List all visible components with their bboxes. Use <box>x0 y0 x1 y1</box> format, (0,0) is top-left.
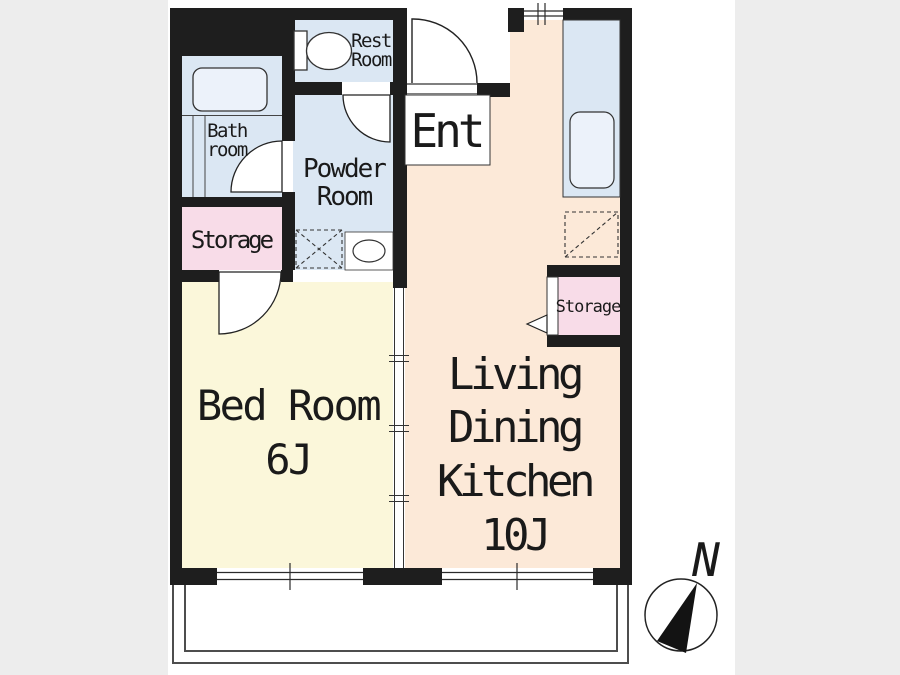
ldk-label-line3: Kitchen <box>437 456 592 507</box>
ldk-label-line2: Dining <box>448 402 581 453</box>
ldk-label-line1: Living <box>448 349 581 400</box>
powder-room-label-line1: Powder <box>303 154 386 184</box>
bed-room-size-label: 6J <box>265 435 311 484</box>
powder-room-label-line2: Room <box>317 182 373 212</box>
entrance-threshold <box>407 83 477 95</box>
wall-segment <box>547 335 632 347</box>
wall-segment <box>620 8 632 585</box>
ldk-size-label: 10J <box>481 510 547 561</box>
toilet-tank-icon <box>294 31 307 70</box>
wall-segment <box>182 197 282 207</box>
wall-segment <box>363 568 442 585</box>
wall-segment <box>547 265 632 277</box>
bathtub-icon <box>193 68 267 111</box>
wash-basin-icon <box>353 240 385 262</box>
toilet-bowl-icon <box>307 33 352 70</box>
wall-segment <box>293 82 342 95</box>
storage-right-label: Storage <box>556 297 621 317</box>
wall-segment <box>508 8 524 32</box>
storage-left-label: Storage <box>191 226 274 254</box>
wall-segment <box>282 192 295 270</box>
wall-segment <box>563 8 632 20</box>
top-window <box>524 8 563 20</box>
entrance-label: Ent <box>410 104 481 158</box>
wall-segment <box>282 8 295 141</box>
wall-segment <box>593 568 632 585</box>
rest-room-label-line2: Room <box>351 49 392 71</box>
kitchen-sink-icon <box>570 112 614 188</box>
bath-room-label-line2: room <box>207 139 248 161</box>
wall-segment <box>170 568 217 585</box>
wall-segment <box>170 8 182 585</box>
floor-plan-page: N Rest Room Bath room Powder Room Ent St… <box>0 0 900 675</box>
wall-segment <box>281 270 293 282</box>
wall-segment <box>170 8 295 56</box>
bed-room-label: Bed Room <box>197 381 381 430</box>
floor-plan-drawing: N Rest Room Bath room Powder Room Ent St… <box>0 0 900 675</box>
wall-segment <box>170 270 219 282</box>
compass-north-label: N <box>691 533 720 587</box>
